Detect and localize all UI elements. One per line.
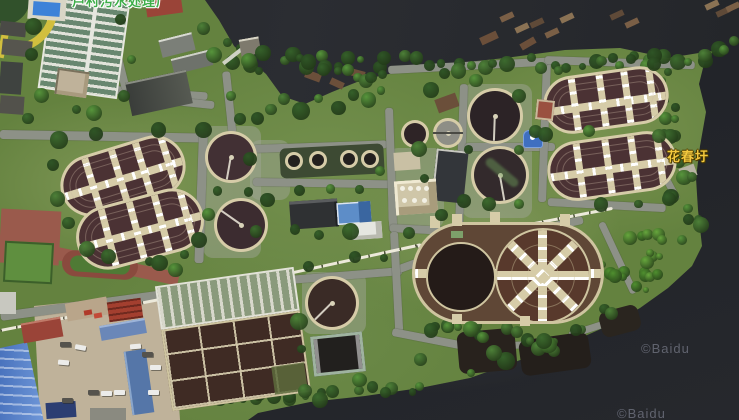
small-silo bbox=[424, 186, 429, 191]
tree bbox=[255, 67, 263, 75]
tree bbox=[451, 63, 467, 79]
tree bbox=[301, 54, 317, 70]
tree bbox=[527, 53, 536, 62]
tree bbox=[50, 191, 65, 206]
tree bbox=[671, 103, 679, 111]
tree bbox=[380, 254, 388, 262]
tree bbox=[375, 166, 386, 177]
tree bbox=[693, 217, 709, 233]
tree bbox=[677, 235, 687, 245]
small-silo bbox=[408, 186, 413, 191]
tree bbox=[251, 112, 264, 125]
tree bbox=[435, 209, 448, 222]
tree bbox=[719, 45, 729, 55]
digester-interior bbox=[312, 154, 324, 166]
tree bbox=[101, 249, 116, 264]
tree bbox=[469, 74, 482, 87]
tree bbox=[202, 208, 215, 221]
truck bbox=[62, 398, 73, 403]
tree bbox=[191, 232, 207, 248]
tree bbox=[326, 184, 335, 193]
baidu-watermark: ©Baidu bbox=[617, 406, 666, 420]
tree bbox=[608, 269, 622, 283]
small-silo bbox=[400, 186, 405, 191]
tree bbox=[662, 192, 676, 206]
dark-blue-roof bbox=[45, 401, 76, 419]
tree bbox=[423, 82, 439, 98]
tree bbox=[664, 68, 672, 76]
square-tank bbox=[310, 331, 366, 376]
tree bbox=[410, 51, 424, 65]
tree bbox=[424, 323, 438, 337]
tree bbox=[303, 261, 314, 272]
tree bbox=[687, 172, 697, 182]
map-label-clipped-top: 芦村污水处理厂 bbox=[72, 0, 170, 10]
truck bbox=[150, 365, 161, 370]
lawn-square bbox=[3, 241, 54, 285]
tree bbox=[260, 193, 274, 207]
tree bbox=[72, 105, 81, 114]
road bbox=[222, 71, 236, 133]
tree bbox=[377, 86, 386, 95]
tree bbox=[298, 384, 312, 398]
tree bbox=[579, 63, 586, 70]
truck bbox=[114, 390, 125, 395]
building bbox=[0, 95, 25, 115]
tree bbox=[244, 187, 254, 197]
tree bbox=[118, 90, 130, 102]
tree bbox=[514, 145, 524, 155]
walkway-stub bbox=[452, 214, 462, 226]
truck bbox=[142, 352, 153, 357]
tree bbox=[22, 113, 34, 125]
map-label-huachunwei: 花春圩 bbox=[667, 146, 709, 165]
tree bbox=[294, 185, 306, 197]
tree bbox=[278, 93, 290, 105]
tree bbox=[605, 307, 618, 320]
tree bbox=[297, 345, 306, 354]
tree bbox=[403, 227, 415, 239]
large-tank-complex bbox=[412, 222, 604, 324]
tree bbox=[698, 49, 711, 62]
tree bbox=[348, 89, 360, 101]
truck bbox=[148, 390, 159, 395]
tree bbox=[652, 129, 666, 143]
white-structure bbox=[0, 292, 16, 314]
tree bbox=[652, 269, 663, 280]
tree bbox=[570, 324, 582, 336]
tree bbox=[554, 66, 563, 75]
building bbox=[0, 61, 23, 94]
shore-ruin bbox=[434, 93, 459, 114]
small-silo bbox=[416, 186, 421, 191]
tree bbox=[486, 345, 502, 361]
tree bbox=[312, 392, 328, 408]
tree bbox=[290, 313, 307, 330]
digester-interior bbox=[343, 153, 355, 165]
tree bbox=[151, 255, 167, 271]
truck bbox=[130, 344, 141, 350]
tree bbox=[583, 125, 595, 137]
walkway-stub bbox=[520, 316, 530, 326]
tree bbox=[250, 225, 263, 238]
tree bbox=[361, 92, 376, 107]
tree bbox=[47, 159, 59, 171]
tree bbox=[213, 186, 223, 196]
tree bbox=[365, 72, 376, 83]
clarifier-hub bbox=[493, 114, 498, 119]
walkway-stub bbox=[490, 212, 500, 224]
small-silo bbox=[402, 198, 407, 203]
tree bbox=[535, 62, 547, 74]
tree bbox=[647, 57, 661, 71]
tree bbox=[197, 22, 210, 35]
tree bbox=[464, 145, 473, 154]
tree bbox=[477, 332, 488, 343]
tree bbox=[596, 56, 606, 66]
tree bbox=[127, 55, 136, 64]
road bbox=[0, 130, 206, 143]
tree bbox=[414, 353, 427, 366]
tree bbox=[265, 104, 276, 115]
tree bbox=[86, 105, 102, 121]
truck bbox=[88, 390, 99, 395]
walkway-stub bbox=[452, 314, 462, 324]
tree bbox=[355, 185, 363, 193]
tree bbox=[454, 323, 462, 331]
tree bbox=[349, 251, 361, 263]
small-silo bbox=[412, 198, 417, 203]
tree bbox=[334, 67, 341, 74]
truck bbox=[58, 360, 69, 366]
tree bbox=[643, 287, 649, 293]
tree bbox=[657, 235, 667, 245]
aeration-basin-complex bbox=[155, 267, 311, 411]
tree bbox=[631, 281, 642, 292]
tree bbox=[437, 59, 445, 67]
tree bbox=[626, 54, 636, 64]
tree bbox=[377, 51, 391, 65]
tree bbox=[623, 231, 637, 245]
tree bbox=[683, 204, 692, 213]
tree bbox=[89, 127, 103, 141]
tree bbox=[180, 250, 189, 259]
satellite-map-canvas[interactable]: 芦村污水处理厂 花春圩 ©Baidu ©Baidu bbox=[0, 0, 739, 420]
tree bbox=[467, 369, 475, 377]
tree bbox=[223, 38, 232, 47]
clarifier-hub bbox=[239, 223, 244, 228]
truck bbox=[60, 342, 71, 347]
small-silo bbox=[422, 198, 427, 203]
tree bbox=[234, 113, 246, 125]
tree bbox=[331, 101, 345, 115]
tree bbox=[226, 91, 236, 101]
tree bbox=[538, 127, 552, 141]
tree bbox=[380, 387, 391, 398]
tree bbox=[25, 18, 42, 35]
tree bbox=[536, 333, 552, 349]
baidu-watermark: ©Baidu bbox=[641, 341, 690, 356]
tree bbox=[314, 94, 323, 103]
tree bbox=[514, 199, 524, 209]
tree bbox=[25, 48, 39, 62]
facility-pad bbox=[394, 179, 438, 216]
swimming-pool bbox=[33, 1, 61, 17]
tree bbox=[352, 373, 367, 388]
tree bbox=[378, 70, 387, 79]
industrial-building bbox=[125, 70, 193, 116]
tree bbox=[671, 115, 680, 124]
tree bbox=[499, 56, 515, 72]
digester-interior bbox=[364, 153, 376, 165]
tree bbox=[151, 122, 167, 138]
walkway-stub bbox=[560, 214, 570, 226]
tree bbox=[314, 230, 325, 241]
digester-interior bbox=[288, 155, 300, 167]
tree bbox=[50, 131, 67, 148]
building bbox=[0, 21, 27, 38]
red-roof-hut bbox=[535, 99, 555, 121]
tree bbox=[341, 51, 354, 64]
tree bbox=[640, 256, 653, 269]
tree bbox=[439, 68, 450, 79]
gray-shed bbox=[90, 408, 126, 420]
tree bbox=[290, 224, 300, 234]
tree bbox=[292, 102, 309, 119]
tree bbox=[354, 386, 364, 396]
tree bbox=[326, 385, 339, 398]
tree bbox=[206, 47, 222, 63]
tree bbox=[195, 122, 211, 138]
truck bbox=[101, 391, 112, 396]
tree bbox=[34, 88, 49, 103]
gray-clarifier-cross bbox=[433, 132, 463, 134]
tree bbox=[367, 381, 379, 393]
tree bbox=[457, 194, 471, 208]
tree bbox=[79, 241, 96, 258]
clarifier-hub bbox=[330, 301, 335, 306]
tree bbox=[409, 388, 417, 396]
tree bbox=[168, 263, 183, 278]
clarifier-hub bbox=[229, 155, 234, 160]
tree bbox=[656, 253, 663, 260]
tree bbox=[62, 217, 74, 229]
tank-platform bbox=[54, 68, 89, 98]
